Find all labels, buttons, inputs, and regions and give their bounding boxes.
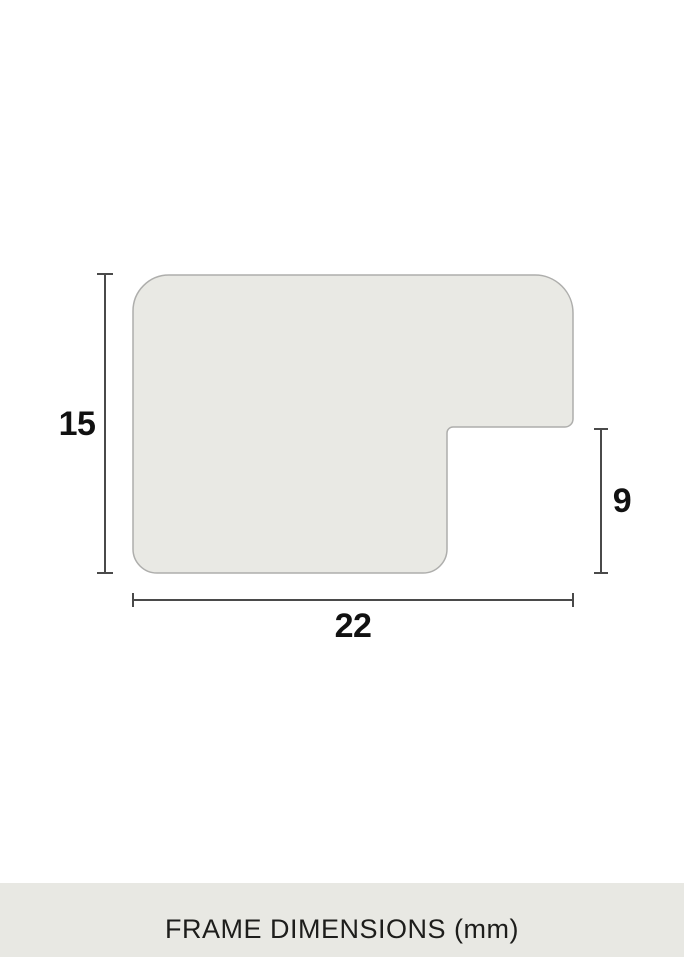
width-dimension-label: 22 <box>313 606 393 646</box>
width-dimension-line <box>133 593 573 607</box>
frame-dimensions-page: 15 9 22 FRAME DIMENSIONS (mm) <box>0 0 684 957</box>
caption-text: FRAME DIMENSIONS (mm) <box>165 914 519 945</box>
rabbet-dimension-label: 9 <box>582 481 662 521</box>
frame-profile-shape <box>133 275 573 573</box>
height-dimension-label: 15 <box>37 404 117 444</box>
caption-bar: FRAME DIMENSIONS (mm) <box>0 883 684 957</box>
frame-profile-diagram <box>0 0 684 957</box>
